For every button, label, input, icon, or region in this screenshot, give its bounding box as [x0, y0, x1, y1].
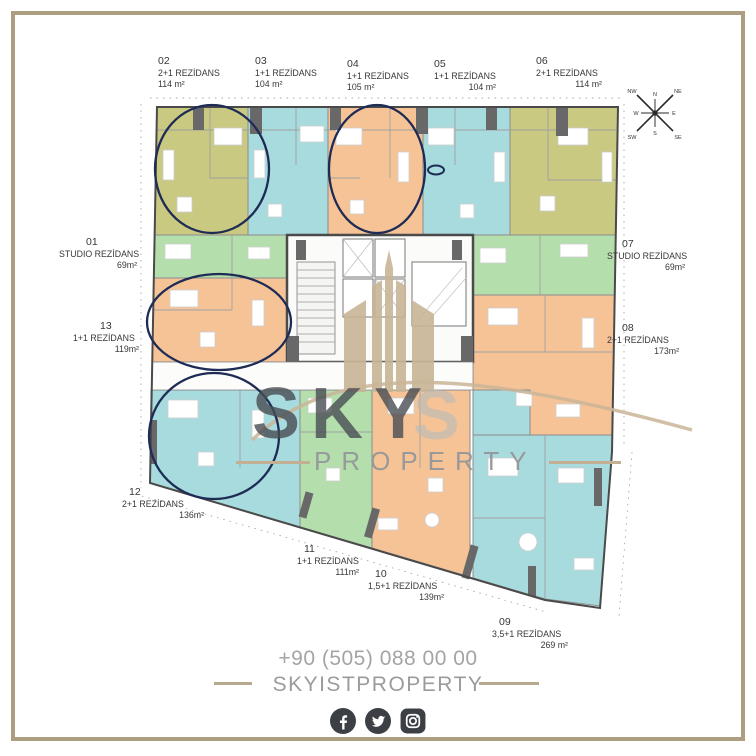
unit-label-03: 03 1+1 REZİDANS 104 m² [255, 55, 341, 90]
brand-name: SKYISTPROPERTY [0, 673, 756, 697]
twitter-icon[interactable] [365, 708, 391, 734]
unit-area: 114 m² [536, 79, 602, 90]
unit-type: STUDIO REZİDANS [607, 251, 685, 262]
unit-area: 136m² [122, 510, 204, 521]
unit-label-11: 11 1+1 REZİDANS 111m² [297, 543, 359, 578]
unit-number: 05 [434, 58, 496, 71]
unit-type: 1+1 REZİDANS [297, 556, 359, 567]
unit-area-07[interactable] [473, 235, 616, 295]
unit-type: 1+1 REZİDANS [255, 68, 341, 79]
unit-area: 69m² [607, 262, 685, 273]
unit-label-02: 02 2+1 REZİDANS 114 m² [158, 55, 244, 90]
watermark-ghost-letter: S [413, 380, 460, 450]
unit-number: 08 [607, 322, 679, 335]
svg-text:W: W [633, 111, 639, 117]
social-icons-row [0, 708, 756, 734]
unit-area: 114 m² [158, 79, 244, 90]
svg-text:SE: SE [674, 135, 682, 141]
svg-text:NW: NW [627, 89, 637, 95]
svg-text:N: N [653, 92, 657, 98]
unit-number: 13 [73, 320, 139, 333]
unit-label-01: 01 STUDIO REZİDANS 69m² [59, 236, 137, 271]
unit-label-12: 12 2+1 REZİDANS 136m² [122, 486, 204, 521]
watermark-sky-text: SKY [252, 378, 433, 450]
unit-area: 105 m² [347, 82, 433, 93]
unit-label-13: 13 1+1 REZİDANS 119m² [73, 320, 139, 355]
unit-type: 1+1 REZİDANS [73, 333, 139, 344]
unit-area: 139m² [368, 592, 444, 603]
unit-type: 2+1 REZİDANS [158, 68, 244, 79]
watermark-dash-left [236, 461, 310, 464]
unit-number: 09 [492, 616, 568, 629]
unit-number: 10 [368, 568, 444, 581]
compass-icon: N NE E SE S SW W NW [627, 89, 682, 141]
unit-label-04: 04 1+1 REZİDANS 105 m² [347, 58, 433, 93]
unit-area: 104 m² [255, 79, 341, 90]
unit-type: STUDIO REZİDANS [59, 249, 137, 260]
unit-label-09: 09 3,5+1 REZİDANS 269 m² [492, 616, 568, 651]
unit-number: 12 [122, 486, 204, 499]
unit-type: 2+1 REZİDANS [536, 68, 602, 79]
unit-area: 119m² [73, 344, 139, 355]
svg-text:NE: NE [674, 89, 682, 95]
unit-number: 07 [607, 238, 685, 251]
unit-type: 3,5+1 REZİDANS [492, 629, 568, 640]
watermark-property-text: PROPERTY [314, 448, 537, 474]
unit-label-06: 06 2+1 REZİDANS 114 m² [536, 55, 602, 90]
instagram-icon[interactable] [400, 708, 426, 734]
unit-number: 04 [347, 58, 433, 71]
unit-type: 1,5+1 REZİDANS [368, 581, 444, 592]
svg-text:E: E [672, 111, 676, 117]
unit-type: 1+1 REZİDANS [434, 71, 496, 82]
unit-area: 69m² [59, 260, 137, 271]
phone-number: +90 (505) 088 00 00 [0, 647, 756, 671]
svg-text:SW: SW [628, 135, 638, 141]
unit-label-08: 08 2+1 REZİDANS 173m² [607, 322, 679, 357]
unit-label-10: 10 1,5+1 REZİDANS 139m² [368, 568, 444, 603]
svg-text:S: S [653, 131, 657, 137]
unit-type: 2+1 REZİDANS [607, 335, 679, 346]
unit-number: 02 [158, 55, 244, 68]
unit-label-07: 07 STUDIO REZİDANS 69m² [607, 238, 685, 273]
unit-number: 06 [536, 55, 602, 68]
unit-number: 01 [59, 236, 137, 249]
unit-number: 03 [255, 55, 341, 68]
unit-area: 104 m² [434, 82, 496, 93]
unit-label-05: 05 1+1 REZİDANS 104 m² [434, 58, 496, 93]
facebook-icon[interactable] [330, 708, 356, 734]
watermark-dash-right [549, 461, 621, 464]
unit-area: 111m² [297, 567, 359, 578]
unit-type: 1+1 REZİDANS [347, 71, 433, 82]
unit-number: 11 [297, 543, 359, 556]
unit-area: 173m² [607, 346, 679, 357]
unit-type: 2+1 REZİDANS [122, 499, 204, 510]
flyer-page: N NE E SE S SW W NW SKY S PROPERTY 02 2+… [0, 0, 756, 756]
